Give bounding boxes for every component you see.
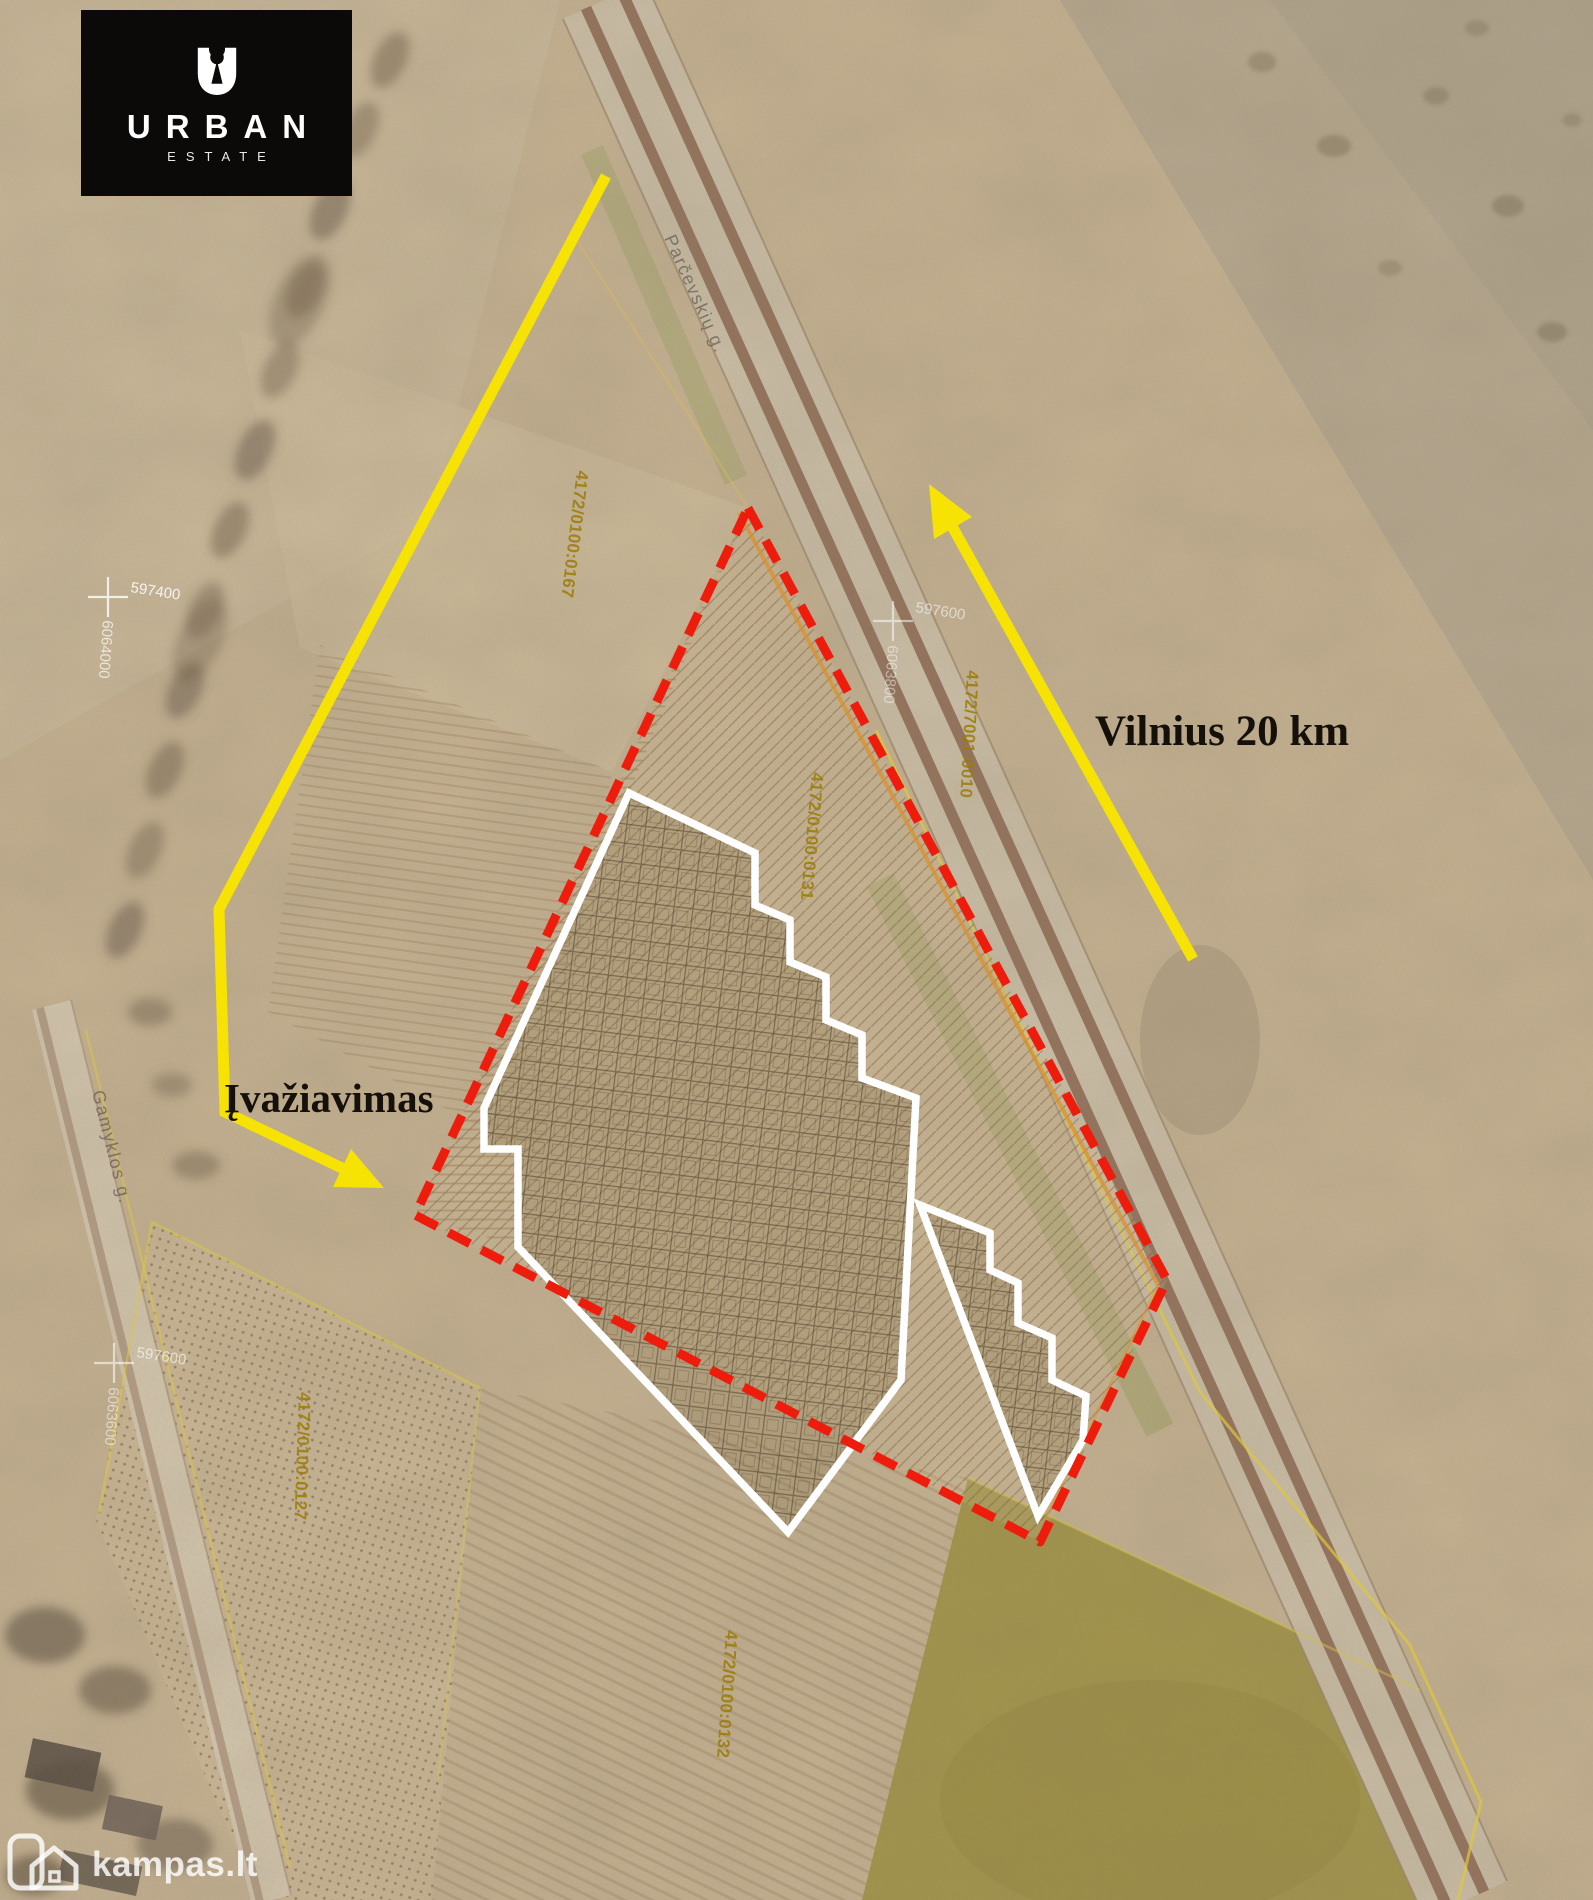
agency-subtitle: ESTATE — [157, 150, 276, 163]
agency-logo: URBAN ESTATE — [81, 10, 352, 196]
entrance-label: Įvažiavimas — [224, 1075, 434, 1121]
aerial-listing-image: 597400 6064000 597600 6063800 597600 606… — [0, 0, 1593, 1900]
portal-watermark: kampas.lt — [6, 1832, 258, 1897]
aerial-map: 597400 6064000 597600 6063800 597600 606… — [0, 0, 1593, 1900]
kampas-house-icon — [6, 1832, 80, 1897]
distance-label: Vilnius 20 km — [1095, 708, 1349, 755]
agency-name: URBAN — [112, 110, 321, 143]
keyhole-icon — [193, 44, 241, 103]
portal-name: kampas.lt — [92, 1845, 258, 1885]
